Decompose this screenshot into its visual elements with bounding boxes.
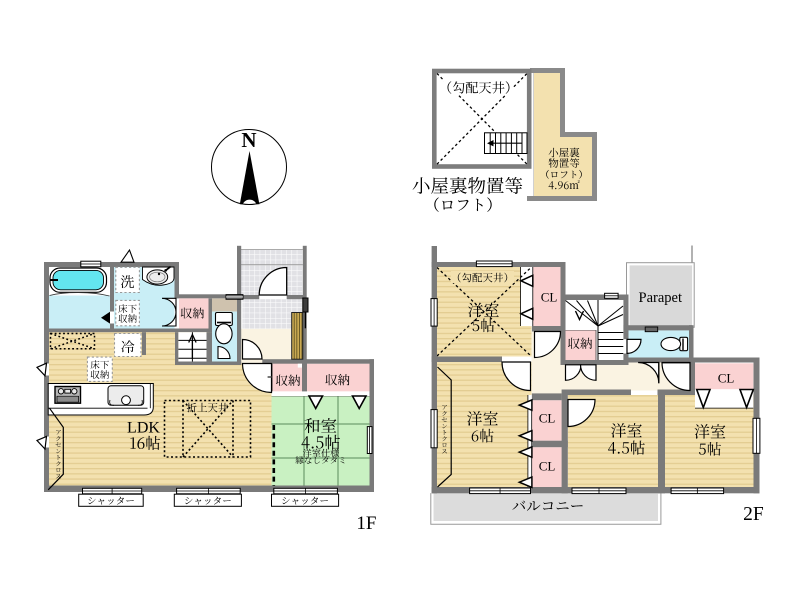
svg-text:CL: CL bbox=[539, 411, 556, 426]
svg-text:Parapet: Parapet bbox=[639, 290, 682, 306]
svg-text:LDK: LDK bbox=[127, 420, 160, 437]
svg-text:1F: 1F bbox=[356, 513, 376, 534]
svg-text:CL: CL bbox=[541, 290, 558, 305]
svg-text:CL: CL bbox=[718, 371, 735, 386]
svg-text:N: N bbox=[241, 128, 256, 152]
svg-text:CL: CL bbox=[539, 459, 556, 474]
svg-text:2F: 2F bbox=[743, 504, 764, 525]
